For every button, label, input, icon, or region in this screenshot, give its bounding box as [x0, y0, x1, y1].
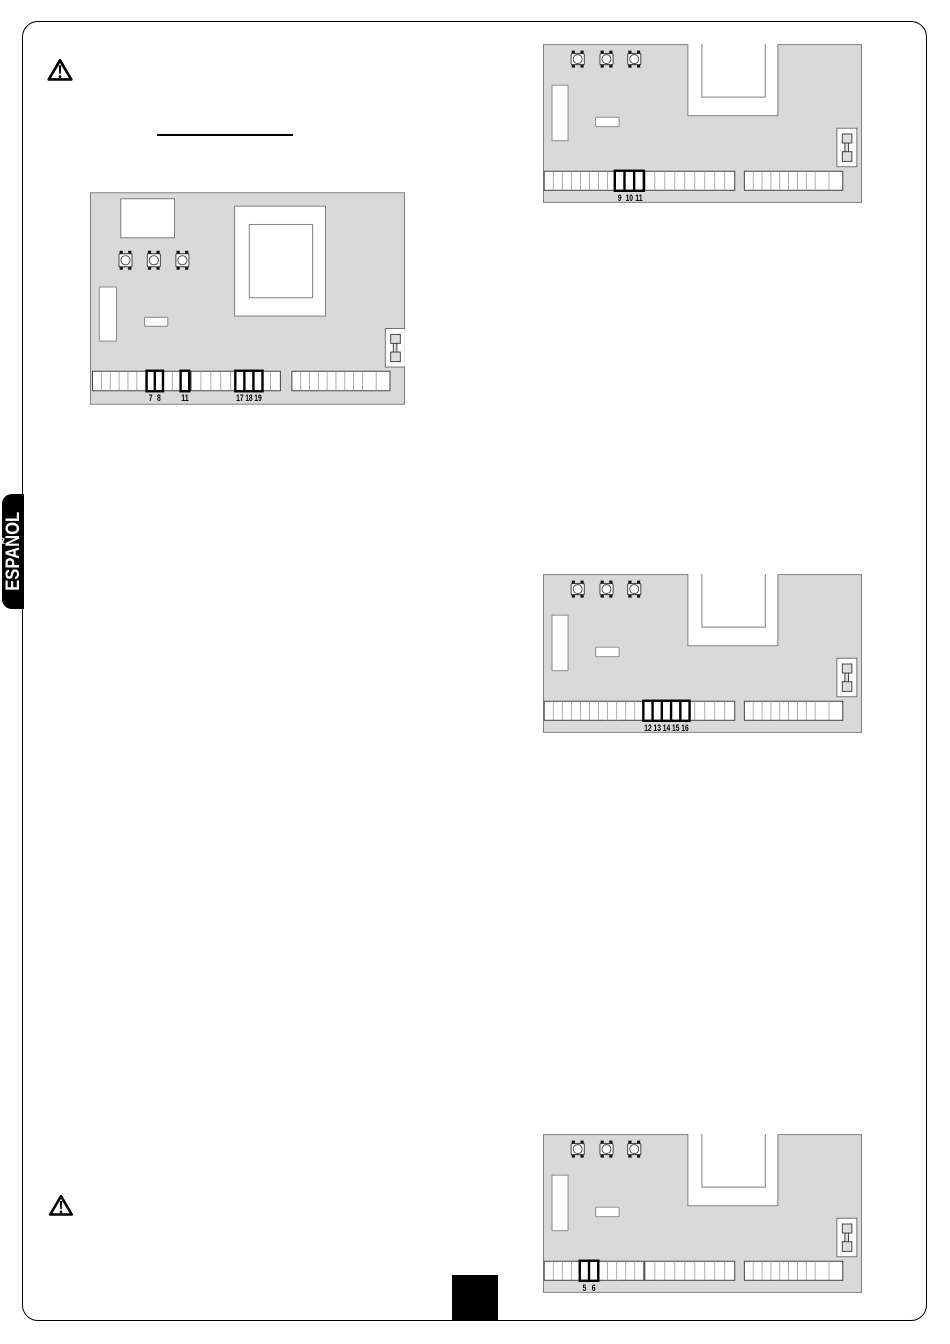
- svg-text:6: 6: [592, 1283, 596, 1293]
- svg-text:10: 10: [626, 193, 633, 203]
- svg-text:9: 9: [618, 193, 622, 203]
- svg-text:12: 12: [644, 723, 651, 733]
- svg-text:8: 8: [157, 392, 161, 402]
- svg-text:7: 7: [149, 392, 153, 402]
- svg-text:ESPAÑOL: ESPAÑOL: [2, 511, 24, 590]
- svg-text:19: 19: [254, 392, 261, 402]
- svg-text:11: 11: [181, 392, 188, 402]
- svg-text:16: 16: [681, 723, 688, 733]
- svg-text:11: 11: [635, 193, 642, 203]
- svg-text:18: 18: [245, 392, 252, 402]
- svg-text:17: 17: [236, 392, 243, 402]
- svg-text:14: 14: [663, 723, 671, 733]
- svg-text:15: 15: [672, 723, 679, 733]
- svg-text:5: 5: [582, 1283, 586, 1293]
- svg-text:13: 13: [653, 723, 660, 733]
